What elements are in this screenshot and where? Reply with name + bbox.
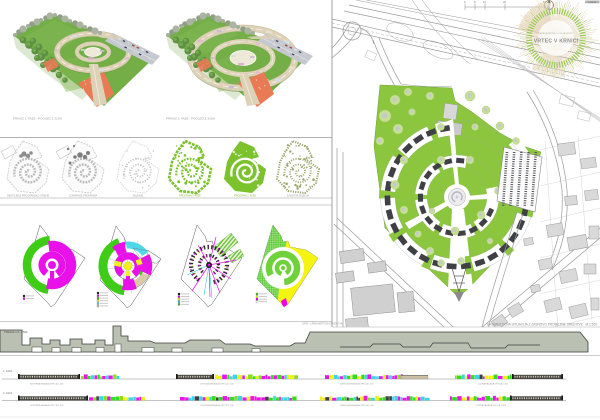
svg-text:2. FAZA: 2. FAZA [3, 391, 13, 395]
svg-text:N 134/20: N 134/20 [588, 2, 597, 4]
svg-text:PRIKAZ 2. FAZE - POGLED Z JUGA: PRIKAZ 2. FAZE - POGLED Z JUGA [166, 117, 215, 121]
svg-text:OPIS - URBANISTICNA ZASNOVA: OPIS - URBANISTICNA ZASNOVA [302, 322, 343, 326]
svg-text:PROGRAM 1. FAZE: PROGRAM 1. FAZE [179, 195, 201, 198]
svg-text:PROGRAM 2. FAZE: PROGRAM 2. FAZE [234, 195, 256, 198]
svg-text:NATECAJNI PREDLOG ZA VRTEC: NATECAJNI PREDLOG ZA VRTEC [539, 32, 574, 35]
svg-text:ZAHODNA FASADA VRTCA 1:200: ZAHODNA FASADA VRTCA 1:200 [340, 404, 374, 407]
svg-text:CONIRANJE PROGRAMA: CONIRANJE PROGRAMA [69, 195, 98, 198]
svg-text:URBANISTICNA SITUACIJA Z ZASNO: URBANISTICNA SITUACIJA Z ZASNOVO PROMETN… [487, 323, 597, 327]
svg-text:VRTEC V KRNICI: VRTEC V KRNICI [534, 39, 579, 45]
svg-text:JUZNA FASADA VRTCA 1:200: JUZNA FASADA VRTCA 1:200 [476, 404, 507, 407]
svg-text:OBSTOJECE PROGRAMSKO STANJE: OBSTOJECE PROGRAMSKO STANJE [7, 195, 50, 198]
svg-text:SEVERNA FASADA VRTCA 1:200: SEVERNA FASADA VRTCA 1:200 [30, 404, 64, 407]
svg-text:ZELENJE: ZELENJE [133, 195, 144, 198]
svg-text:JUZNA FASADA VRTCA 1:200: JUZNA FASADA VRTCA 1:200 [478, 383, 509, 386]
svg-text:ZASNOVA ZELENJA: ZASNOVA ZELENJA [287, 195, 310, 198]
svg-text:1. FAZA: 1. FAZA [3, 369, 13, 373]
svg-text:VZHODNA FASADA VRTCA 1:200: VZHODNA FASADA VRTCA 1:200 [200, 404, 234, 407]
svg-text:ZAHODNA FASADA VRTCA 1:200: ZAHODNA FASADA VRTCA 1:200 [340, 383, 374, 386]
svg-text:PRIKAZ 1. FAZE - POGLED Z JUGA: PRIKAZ 1. FAZE - POGLED Z JUGA [13, 117, 62, 121]
svg-text:SEVERNA FASADA VRTCA 1:200: SEVERNA FASADA VRTCA 1:200 [30, 383, 64, 386]
svg-text:PREREZ A-A 1:500: PREREZ A-A 1:500 [4, 330, 28, 334]
svg-text:VZHODNA FASADA VRTCA 1:200: VZHODNA FASADA VRTCA 1:200 [200, 383, 234, 386]
